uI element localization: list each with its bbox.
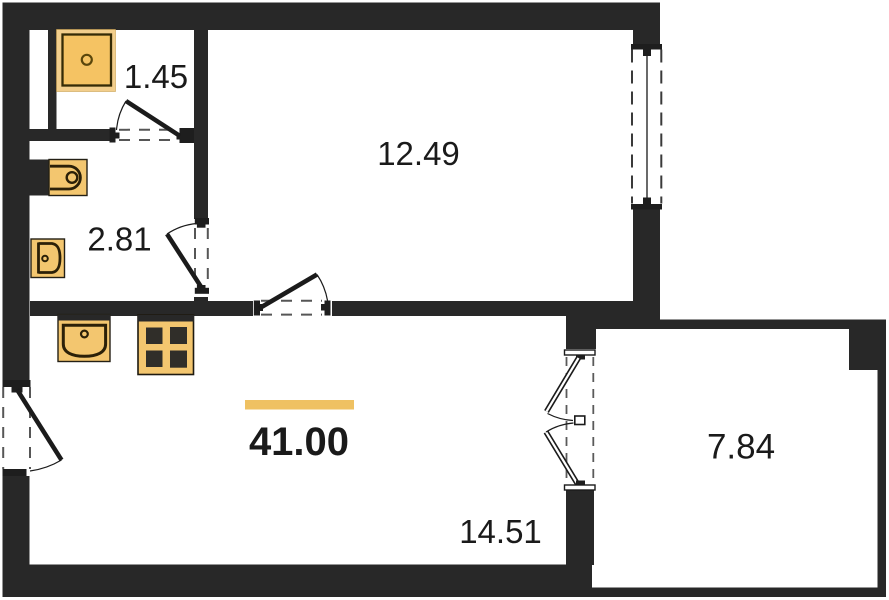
- svg-text:14.51: 14.51: [459, 513, 542, 550]
- svg-text:1.45: 1.45: [124, 58, 188, 95]
- svg-text:7.84: 7.84: [707, 428, 775, 467]
- svg-text:2.81: 2.81: [87, 221, 151, 258]
- svg-text:41.00: 41.00: [249, 420, 349, 464]
- svg-text:12.49: 12.49: [377, 135, 460, 172]
